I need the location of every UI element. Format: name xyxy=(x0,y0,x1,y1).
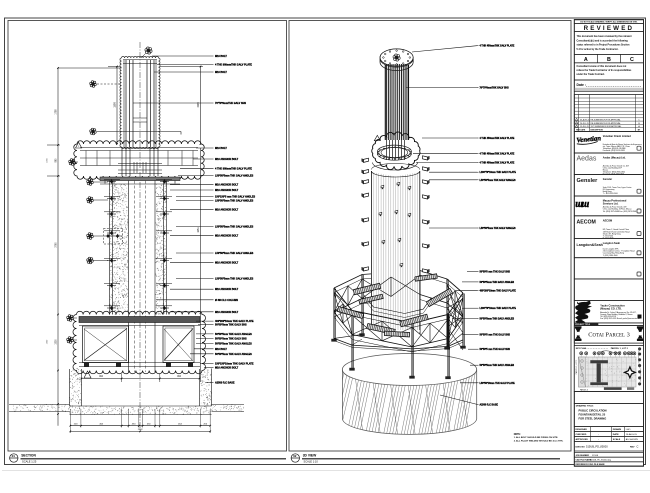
svg-text:M16 BOLT: M16 BOLT xyxy=(215,147,227,150)
svg-text:150*150*5 mm THK GALV ANGLES: 150*150*5 mm THK GALV ANGLES xyxy=(215,196,255,199)
svg-text:C: C xyxy=(637,444,639,448)
svg-text:A2500 R.C BASE: A2500 R.C BASE xyxy=(215,381,235,384)
svg-text:This document has been rev: This document has been reviewed by the r… xyxy=(577,35,632,38)
svg-text:Gensler: Gensler xyxy=(577,178,599,184)
svg-text:Aedas (Macau) Ltd.: Aedas (Macau) Ltd. xyxy=(603,157,626,160)
svg-text:03-AUG-15: 03-AUG-15 xyxy=(580,119,590,122)
svg-text:C: C xyxy=(630,57,634,63)
svg-text:515UB_PD_85000.dwg: 515UB_PD_85000.dwg xyxy=(590,460,611,462)
svg-text:L50*50*5mm THK GALV ANGLES: L50*50*5mm THK GALV ANGLES xyxy=(480,179,516,182)
svg-text:DESIGNED: DESIGNED xyxy=(576,429,588,431)
svg-text:50*50*5 mm THK GALV SHS: 50*50*5 mm THK GALV SHS xyxy=(480,271,511,274)
svg-text:SCALE 1:10: SCALE 1:10 xyxy=(304,460,319,464)
svg-text:A: A xyxy=(584,57,588,63)
svg-text:50*50*5mm THK GALV ANGLES: 50*50*5mm THK GALV ANGLES xyxy=(215,333,252,336)
svg-text:15-JUL-15: 15-JUL-15 xyxy=(580,126,589,128)
svg-text:CHECKED: CHECKED xyxy=(576,434,587,436)
svg-text:M16 BOLT: M16 BOLT xyxy=(215,348,227,351)
svg-text:2562: 2562 xyxy=(138,429,144,431)
svg-text:Aedas: Aedas xyxy=(577,156,597,163)
svg-text:SECTION: SECTION xyxy=(21,454,36,458)
svg-text:M16 ANCHOR BOLT: M16 ANCHOR BOLT xyxy=(215,209,239,212)
svg-text:Date :: Date : xyxy=(577,83,586,87)
svg-text:L50*50*5mm THK GALV ANGLES: L50*50*5mm THK GALV ANGLES xyxy=(215,174,254,177)
svg-text:FOUNTAIN DETAIL 25: FOUNTAIN DETAIL 25 xyxy=(579,413,606,417)
svg-text:50*50*5mm THK GALV ANGLES: 50*50*5mm THK GALV ANGLES xyxy=(480,281,515,284)
svg-text:under the Trade Contract.: under the Trade Contract. xyxy=(577,73,606,76)
svg-text:50*50*5mm THK GALV ANGLES: 50*50*5mm THK GALV ANGLES xyxy=(215,353,252,356)
svg-text:COTAI PARCEL 3: COTAI PARCEL 3 xyxy=(588,331,630,338)
svg-text:AECOM: AECOM xyxy=(603,219,612,222)
svg-text:L50*50*5mm THK GALV ANGLES: L50*50*5mm THK GALV ANGLES xyxy=(480,227,516,230)
svg-text:400*200*10mm THK GALV PLATE: 400*200*10mm THK GALV PLATE xyxy=(480,290,517,293)
svg-text:4 THK 900mmTHK GALV PLATE: 4 THK 900mmTHK GALV PLATE xyxy=(215,64,252,67)
svg-text:L50*50*5mm THK GALV ANGLES: L50*50*5mm THK GALV ANGLES xyxy=(215,278,254,281)
svg-text:14-AUG-15: 14-AUG-15 xyxy=(626,433,638,436)
svg-text:PARCEL 1, LOT 2: PARCEL 1, LOT 2 xyxy=(611,347,629,350)
svg-text:M16 BOLT: M16 BOLT xyxy=(215,55,227,58)
svg-text:DWG NO: DWG NO xyxy=(576,446,586,448)
svg-text:4 THK 450mmTHK GALV PLATE: 4 THK 450mmTHK GALV PLATE xyxy=(480,161,515,164)
svg-text:RE-SUBMISSION FOR APPROVAL: RE-SUBMISSION FOR APPROVAL xyxy=(591,122,621,125)
svg-text:M16 ANCHOR BOLT: M16 ANCHOR BOLT xyxy=(215,367,239,370)
svg-text:relieve the Trade Contracto: relieve the Trade Contractor of its resp… xyxy=(577,69,633,72)
svg-text:Venetian Orient Limited: Venetian Orient Limited xyxy=(603,135,631,138)
svg-text:L50*50*5mm THK GALV ANGLES: L50*50*5mm THK GALV ANGLES xyxy=(215,225,254,228)
svg-text:2. ALL FILLET WELDED SHOULD BE: 2. ALL FILLET WELDED SHOULD BE 3mm THK. xyxy=(514,439,564,442)
svg-text:3D VIEW: 3D VIEW xyxy=(303,454,317,458)
svg-text:APPROVED: APPROVED xyxy=(576,438,589,441)
svg-text:Services Ltd.: Services Ltd. xyxy=(603,203,619,206)
svg-text:Fax: (853) 2870-3311 E-mail:: Fax: (853) 2870-3311 E-mail: yacko@macau… xyxy=(600,317,640,320)
svg-text:PUBLIC CIRCULATION: PUBLIC CIRCULATION xyxy=(579,409,607,413)
svg-text:KEY PLAN: KEY PLAN xyxy=(576,347,587,350)
svg-text:Langdon Seah: Langdon Seah xyxy=(603,242,621,245)
svg-text:4 THK 450mmTHK GALV PLATE: 4 THK 450mmTHK GALV PLATE xyxy=(480,45,515,48)
svg-text:Consultant(s)(s) and is acc: Consultant(s)(s) and is accorded the fol… xyxy=(577,39,629,42)
svg-text:M16 ANCHOR BOLT: M16 ANCHOR BOLT xyxy=(215,311,239,314)
svg-text:LHO: LHO xyxy=(626,429,631,431)
svg-text:T + 852-2507-0500: T + 852-2507-0500 xyxy=(603,193,618,195)
svg-text:50*50*5mm THK GALV SHS: 50*50*5mm THK GALV SHS xyxy=(215,324,247,327)
svg-text:1ST SUBMISSION FOR APPROVAL: 1ST SUBMISSION FOR APPROVAL xyxy=(591,125,622,128)
svg-text:T: (852) 2830-3500: T: (852) 2830-3500 xyxy=(603,255,618,257)
svg-text:M16 ANCHOR BOLT: M16 ANCHOR BOLT xyxy=(215,189,239,192)
svg-text:DRAWING TITLE:: DRAWING TITLE: xyxy=(576,405,594,408)
svg-text:1590: 1590 xyxy=(114,102,117,108)
svg-text:50*50*5 mm THK GALV SHS: 50*50*5 mm THK GALV SHS xyxy=(480,334,511,337)
svg-text:Tel: (853) 2875-3088 Fax: (85: Tel: (853) 2875-3088 Fax: (853) 2875-356… xyxy=(603,211,636,213)
svg-text:M16 ANCHOR BOLT: M16 ANCHOR BOLT xyxy=(215,158,239,161)
svg-text:ɯ: ɯ xyxy=(582,199,590,210)
svg-text:RE-SUBMISSION FOR APPROVAL: RE-SUBMISSION FOR APPROVAL xyxy=(591,119,621,122)
svg-text:A2500 R.C BASE: A2500 R.C BASE xyxy=(480,403,499,406)
svg-text:Facsimile: (853) 81-18-2889: Facsimile: (853) 81-18-2889 xyxy=(603,150,625,152)
svg-text:50*50*5mm THK GALV ANGLES: 50*50*5mm THK GALV ANGLES xyxy=(480,318,515,321)
svg-text:M16 BOLT: M16 BOLT xyxy=(215,71,227,74)
svg-text:50*50*5 mm THK GALV SHS: 50*50*5 mm THK GALV SHS xyxy=(480,348,511,351)
svg-text:REFERENCE DWG FILE NAME: REFERENCE DWG FILE NAME xyxy=(576,463,606,466)
svg-text:REVIEWED: REVIEWED xyxy=(584,25,635,32)
svg-text:FOR STEEL DRAWING: FOR STEEL DRAWING xyxy=(579,416,607,420)
svg-text:02: 02 xyxy=(293,454,297,458)
svg-text:SCALE: SCALE xyxy=(613,438,621,441)
svg-text:1590: 1590 xyxy=(197,102,200,108)
svg-text:4 THK 900mmTHK GALV PLATE: 4 THK 900mmTHK GALV PLATE xyxy=(215,168,252,171)
svg-text:Ø 300 R.C COLUMN: Ø 300 R.C COLUMN xyxy=(215,299,238,302)
svg-text:Langdon&Seah: Langdon&Seah xyxy=(577,243,603,247)
svg-text:Consultant review of this: Consultant review of this document does … xyxy=(577,65,627,68)
svg-text:515UB: 515UB xyxy=(592,455,599,457)
svg-text:AECOM: AECOM xyxy=(577,219,596,225)
svg-text:JOB NUMBER: JOB NUMBER xyxy=(576,455,590,457)
svg-text:515UB_PD_85000: 515UB_PD_85000 xyxy=(586,444,608,448)
svg-text:PARCEL 3: PARCEL 3 xyxy=(580,388,588,391)
svg-text:50*50*5mm THK GALV SHS: 50*50*5mm THK GALV SHS xyxy=(215,338,247,341)
svg-text:L50*50*5mm THK GALV ANGLES: L50*50*5mm THK GALV ANGLES xyxy=(215,252,254,255)
svg-text:PARCEL 1, LOT 1: PARCEL 1, LOT 1 xyxy=(575,360,578,374)
svg-text:DATE: DATE xyxy=(613,433,619,436)
svg-text:M16 ANCHOR BOLT: M16 ANCHOR BOLT xyxy=(215,235,239,238)
svg-text:NOTE:: NOTE: xyxy=(514,434,521,436)
svg-text:1500: 1500 xyxy=(56,339,58,345)
svg-text:(Macau) CO. LTD.: (Macau) CO. LTD. xyxy=(600,307,622,311)
svg-text:AS SHOWN: AS SHOWN xyxy=(626,438,638,441)
svg-text:SCALE 1:25: SCALE 1:25 xyxy=(22,460,37,464)
svg-text:1788: 1788 xyxy=(56,109,58,115)
svg-text:L50*50*10mm THK GALV PLATE: L50*50*10mm THK GALV PLATE xyxy=(480,382,516,385)
svg-text:DRAWN: DRAWN xyxy=(613,428,622,431)
svg-text:REV: REV xyxy=(630,446,635,448)
svg-text:L50*50*5mm THK GALV ANGLES: L50*50*5mm THK GALV ANGLES xyxy=(215,200,254,203)
svg-text:24-JUL-15: 24-JUL-15 xyxy=(580,123,589,125)
svg-text:L100*70*10mm THK GALV PLATE: L100*70*10mm THK GALV PLATE xyxy=(480,171,517,174)
svg-text:status referred to in Pr: status referred to in Project Procedures… xyxy=(577,44,630,47)
svg-text:3760: 3760 xyxy=(56,242,58,248)
svg-text:4 THK 450mmTHK GALV PLATE: 4 THK 450mmTHK GALV PLATE xyxy=(480,137,515,140)
svg-text:1651: 1651 xyxy=(197,227,200,233)
svg-text:70*70*6mmTHK GALV SHS: 70*70*6mmTHK GALV SHS xyxy=(480,87,510,90)
svg-text:01: 01 xyxy=(12,454,16,458)
svg-text:M16 ANCHOR BOLT: M16 ANCHOR BOLT xyxy=(215,261,239,264)
svg-text:4 THK 450mmTHK GALV PLATE: 4 THK 450mmTHK GALV PLATE xyxy=(480,153,515,156)
svg-text:5.4 for action by the Tra: 5.4 for action by the Trade Contractor. xyxy=(577,48,619,51)
svg-text:B: B xyxy=(607,57,611,63)
svg-text:150*150*10mm THK GALV PLATE: 150*150*10mm THK GALV PLATE xyxy=(215,363,254,366)
svg-text:M16 ANCHOR BOLT: M16 ANCHOR BOLT xyxy=(215,184,239,187)
svg-text:Gensler: Gensler xyxy=(603,178,612,181)
svg-text:70*70*6mmTHK GALV SHS: 70*70*6mmTHK GALV SHS xyxy=(215,102,246,105)
svg-text:50*50*5mm THK GALV ANGLES: 50*50*5mm THK GALV ANGLES xyxy=(215,342,252,345)
svg-text:1. ALL BOLT SHOULD BE FIXING O: 1. ALL BOLT SHOULD BE FIXING ON SITE. xyxy=(514,436,559,439)
svg-text:M16 ANCHOR BOLT: M16 ANCHOR BOLT xyxy=(215,288,239,291)
svg-text:50*50*5mm THK GALV ANGLES: 50*50*5mm THK GALV ANGLES xyxy=(480,364,515,367)
svg-text:L100*70*10mm THK GALV PLATE: L100*70*10mm THK GALV PLATE xyxy=(480,307,517,310)
